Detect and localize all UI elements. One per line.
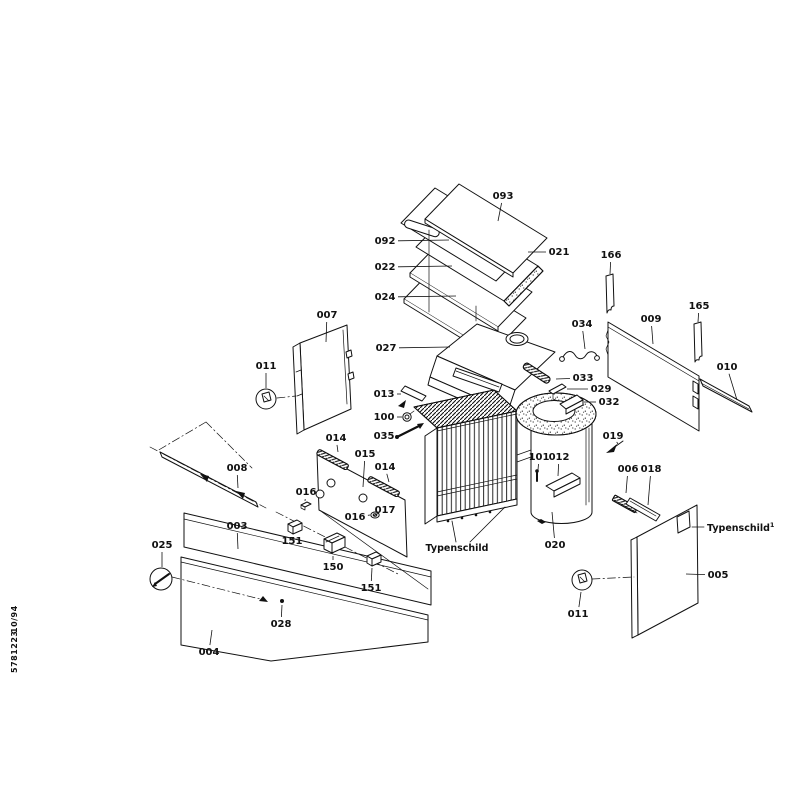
part-screw-025 (150, 568, 172, 590)
part-label-166: 166 (601, 250, 622, 261)
part-ring-100 (403, 411, 414, 421)
leader-line-166 (610, 262, 611, 274)
leader-line-014 (337, 445, 338, 452)
part-wire-harness-034 (560, 351, 600, 361)
part-strip-166 (606, 274, 614, 313)
part-label-151: 151 (282, 536, 303, 547)
part-label-011: 011 (256, 361, 277, 372)
part-label-034: 034 (572, 319, 593, 330)
part-label-019: 019 (603, 431, 624, 442)
part-clip-016-left (301, 502, 311, 510)
part-label-024: 024 (375, 292, 396, 303)
diagram-page: 0930920210220241660091650070340270100110… (0, 0, 800, 800)
part-label-014: 014 (326, 433, 347, 444)
leader-line-011 (579, 592, 581, 607)
leader-line-018 (648, 476, 650, 505)
leader-line-033 (556, 379, 570, 380)
part-label-014: 014 (375, 462, 396, 473)
part-right-door-005 (631, 505, 698, 638)
part-label-151: 151 (361, 583, 382, 594)
part-label-008: 008 (227, 463, 248, 474)
part-strip-165 (694, 322, 702, 362)
leader-line-008 (237, 475, 238, 488)
part-label-006: 006 (618, 464, 639, 475)
part-label-012: 012 (549, 452, 570, 463)
part-label-021: 021 (549, 247, 570, 258)
part-label-013: 013 (374, 389, 395, 400)
part-insulation-ring-032 (516, 393, 596, 435)
part-strip-010 (700, 379, 752, 412)
centerline (592, 577, 634, 579)
part-label-004: 004 (199, 647, 220, 658)
part-bolt-035 (395, 423, 424, 439)
leader-line-101 (538, 464, 539, 470)
exploded-diagram: 0930920210220241660091650070340270100110… (0, 0, 800, 800)
part-label-092: 092 (375, 236, 396, 247)
part-box-151-left (288, 520, 302, 534)
part-label-032: 032 (599, 397, 620, 408)
part-label-029: 029 (591, 384, 612, 395)
centerline (150, 422, 266, 508)
part-label-010: 010 (717, 362, 738, 373)
leader-line-165 (698, 313, 699, 322)
part-label-022: 022 (375, 262, 396, 273)
typenschild-label-right: Typenschild1 (707, 521, 775, 534)
part-label-018: 018 (641, 464, 662, 475)
part-label-020: 020 (545, 540, 566, 551)
centerline (277, 396, 296, 398)
part-label-003: 003 (227, 521, 248, 532)
leader-line-006 (626, 476, 627, 493)
footer-document-code: 5781223 (10, 631, 19, 673)
footer-date: 10/94 (10, 605, 19, 633)
leader-line-027 (399, 347, 450, 348)
leader-line-009 (652, 326, 653, 344)
part-label-028: 028 (271, 619, 292, 630)
leader-line-014 (387, 474, 389, 482)
part-label-101: 101 (529, 452, 550, 463)
part-label-150: 150 (323, 562, 344, 573)
part-label-033: 033 (573, 373, 594, 384)
part-label-025: 025 (152, 540, 173, 551)
part-label-016: 016 (296, 487, 317, 498)
part-label-165: 165 (689, 301, 710, 312)
part-label-100: 100 (374, 412, 395, 423)
leader-line-034 (583, 331, 585, 349)
part-clip-011-right (572, 570, 592, 590)
leader-line-019 (617, 442, 618, 444)
part-heat-exchanger (414, 390, 531, 524)
part-label-016: 016 (345, 512, 366, 523)
part-label-035: 035 (374, 431, 395, 442)
part-screw-028 (280, 599, 284, 603)
part-clip-011-left (256, 389, 276, 409)
typenschild-label-center: Typenschild (426, 543, 489, 554)
part-label-009: 009 (641, 314, 662, 325)
part-label-017: 017 (375, 505, 396, 516)
part-label-007: 007 (317, 310, 338, 321)
part-label-027: 027 (376, 343, 397, 354)
direction-arrow-019 (606, 441, 623, 453)
part-left-door-007 (293, 325, 354, 434)
part-channel-013 (398, 386, 426, 408)
part-label-005: 005 (708, 570, 729, 581)
part-label-093: 093 (493, 191, 514, 202)
part-label-015: 015 (355, 449, 376, 460)
part-label-011: 011 (568, 609, 589, 620)
